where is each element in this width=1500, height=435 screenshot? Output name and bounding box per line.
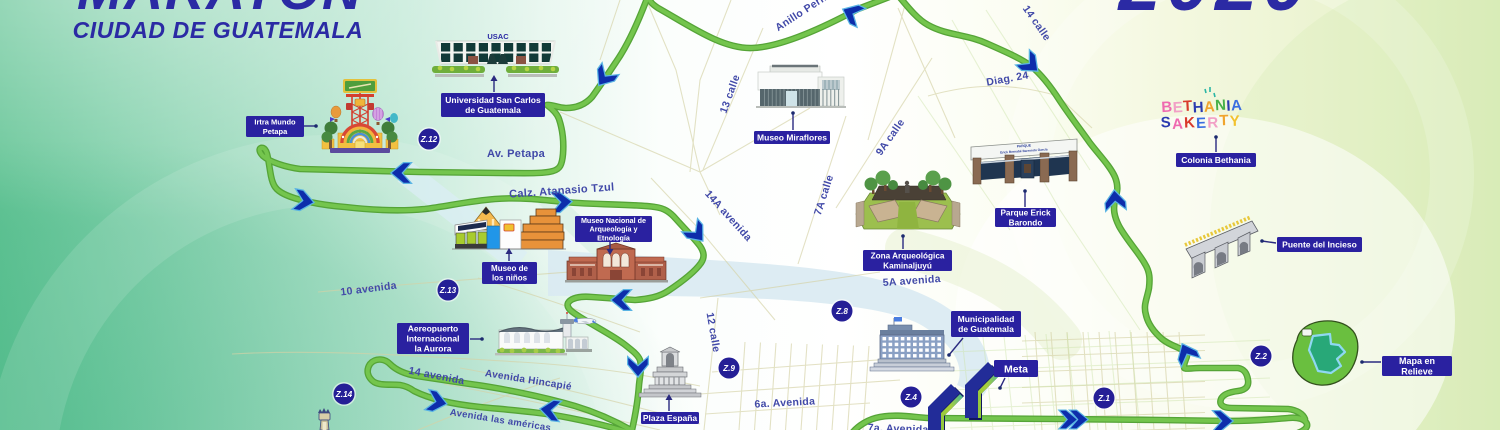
svg-text:Z.4: Z.4	[904, 393, 917, 402]
svg-text:Municipalidad: Municipalidad	[958, 314, 1015, 324]
svg-text:Meta: Meta	[1004, 363, 1028, 375]
svg-text:Arqueología y: Arqueología y	[590, 225, 638, 234]
svg-text:Zona Arqueológica: Zona Arqueológica	[871, 252, 945, 261]
svg-text:Aereopuerto: Aereopuerto	[408, 324, 459, 334]
svg-text:Etnología: Etnología	[597, 233, 631, 242]
svg-text:de Guatemala: de Guatemala	[465, 105, 521, 115]
svg-text:Parque Erick: Parque Erick	[1000, 209, 1051, 218]
svg-text:la Aurora: la Aurora	[414, 344, 451, 354]
svg-text:Irtra Mundo: Irtra Mundo	[254, 118, 296, 127]
svg-text:Relieve: Relieve	[1401, 367, 1433, 377]
svg-text:Puente del Incieso: Puente del Incieso	[1282, 240, 1357, 250]
svg-text:Barondo: Barondo	[1009, 218, 1043, 227]
svg-text:Z.12: Z.12	[420, 135, 438, 144]
svg-text:de Guatemala: de Guatemala	[958, 324, 1014, 334]
svg-text:Universidad San Carlos: Universidad San Carlos	[445, 95, 541, 105]
svg-text:Av. Petapa: Av. Petapa	[487, 148, 546, 160]
svg-text:Z.1: Z.1	[1097, 394, 1110, 403]
svg-text:Colonia Bethania: Colonia Bethania	[1181, 155, 1251, 165]
svg-text:Museo Miraflores: Museo Miraflores	[757, 133, 827, 143]
svg-text:Z.2: Z.2	[1254, 352, 1267, 361]
svg-text:Z.8: Z.8	[835, 307, 848, 316]
svg-text:Z.9: Z.9	[722, 364, 735, 373]
svg-text:Mapa en: Mapa en	[1399, 356, 1435, 366]
svg-text:USAC: USAC	[487, 32, 509, 41]
svg-text:7a. Avenida: 7a. Avenida	[867, 422, 928, 430]
svg-text:los niños: los niños	[492, 274, 528, 283]
svg-text:Z.13: Z.13	[439, 286, 457, 295]
svg-text:Internacional: Internacional	[407, 334, 460, 344]
svg-text:Petapa: Petapa	[263, 127, 288, 136]
svg-text:CIUDAD DE GUATEMALA: CIUDAD DE GUATEMALA	[73, 17, 364, 43]
svg-text:Kaminaljuyú: Kaminaljuyú	[883, 261, 932, 270]
svg-text:Z.14: Z.14	[335, 390, 353, 399]
svg-text:Museo Nacional de: Museo Nacional de	[581, 216, 646, 225]
svg-text:2020: 2020	[1116, 0, 1311, 27]
svg-text:Plaza España: Plaza España	[643, 413, 698, 423]
svg-text:Museo de: Museo de	[491, 264, 528, 273]
